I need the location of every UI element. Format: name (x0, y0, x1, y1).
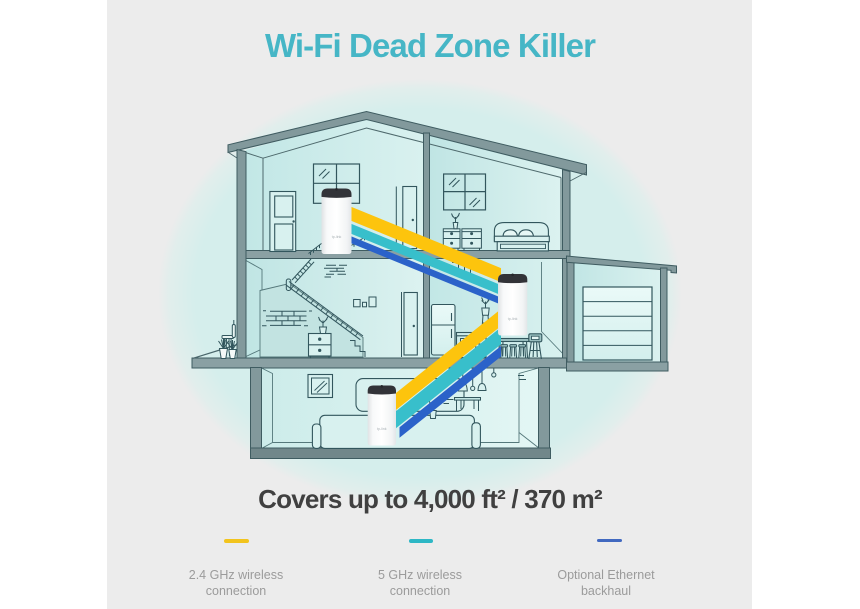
svg-text:tp-link: tp-link (377, 427, 387, 431)
svg-text:tp-link: tp-link (332, 235, 342, 239)
svg-text:tp-link: tp-link (508, 317, 518, 321)
